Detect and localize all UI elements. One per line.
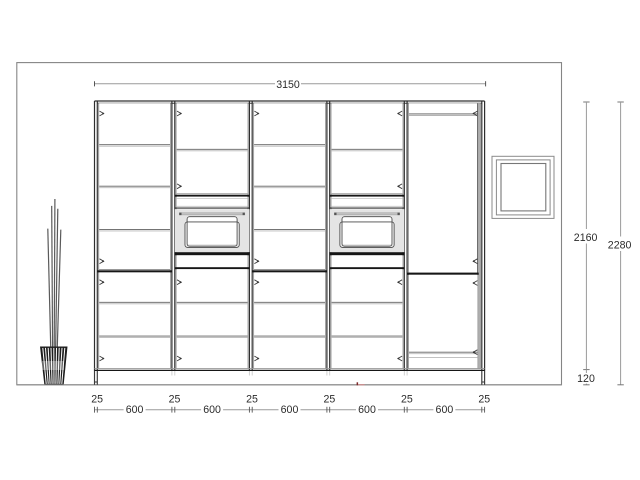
svg-text:2280: 2280 <box>608 240 632 252</box>
svg-text:25: 25 <box>246 394 258 406</box>
svg-text:25: 25 <box>401 394 413 406</box>
svg-text:600: 600 <box>358 404 376 416</box>
svg-text:600: 600 <box>126 404 144 416</box>
svg-text:600: 600 <box>436 404 454 416</box>
svg-text:25: 25 <box>91 394 103 406</box>
svg-text:600: 600 <box>203 404 221 416</box>
svg-text:120: 120 <box>577 373 595 385</box>
svg-text:25: 25 <box>169 394 181 406</box>
svg-text:25: 25 <box>324 394 336 406</box>
svg-text:3150: 3150 <box>276 79 300 91</box>
svg-text:600: 600 <box>281 404 299 416</box>
svg-text:2160: 2160 <box>574 232 598 244</box>
svg-text:25: 25 <box>478 394 490 406</box>
